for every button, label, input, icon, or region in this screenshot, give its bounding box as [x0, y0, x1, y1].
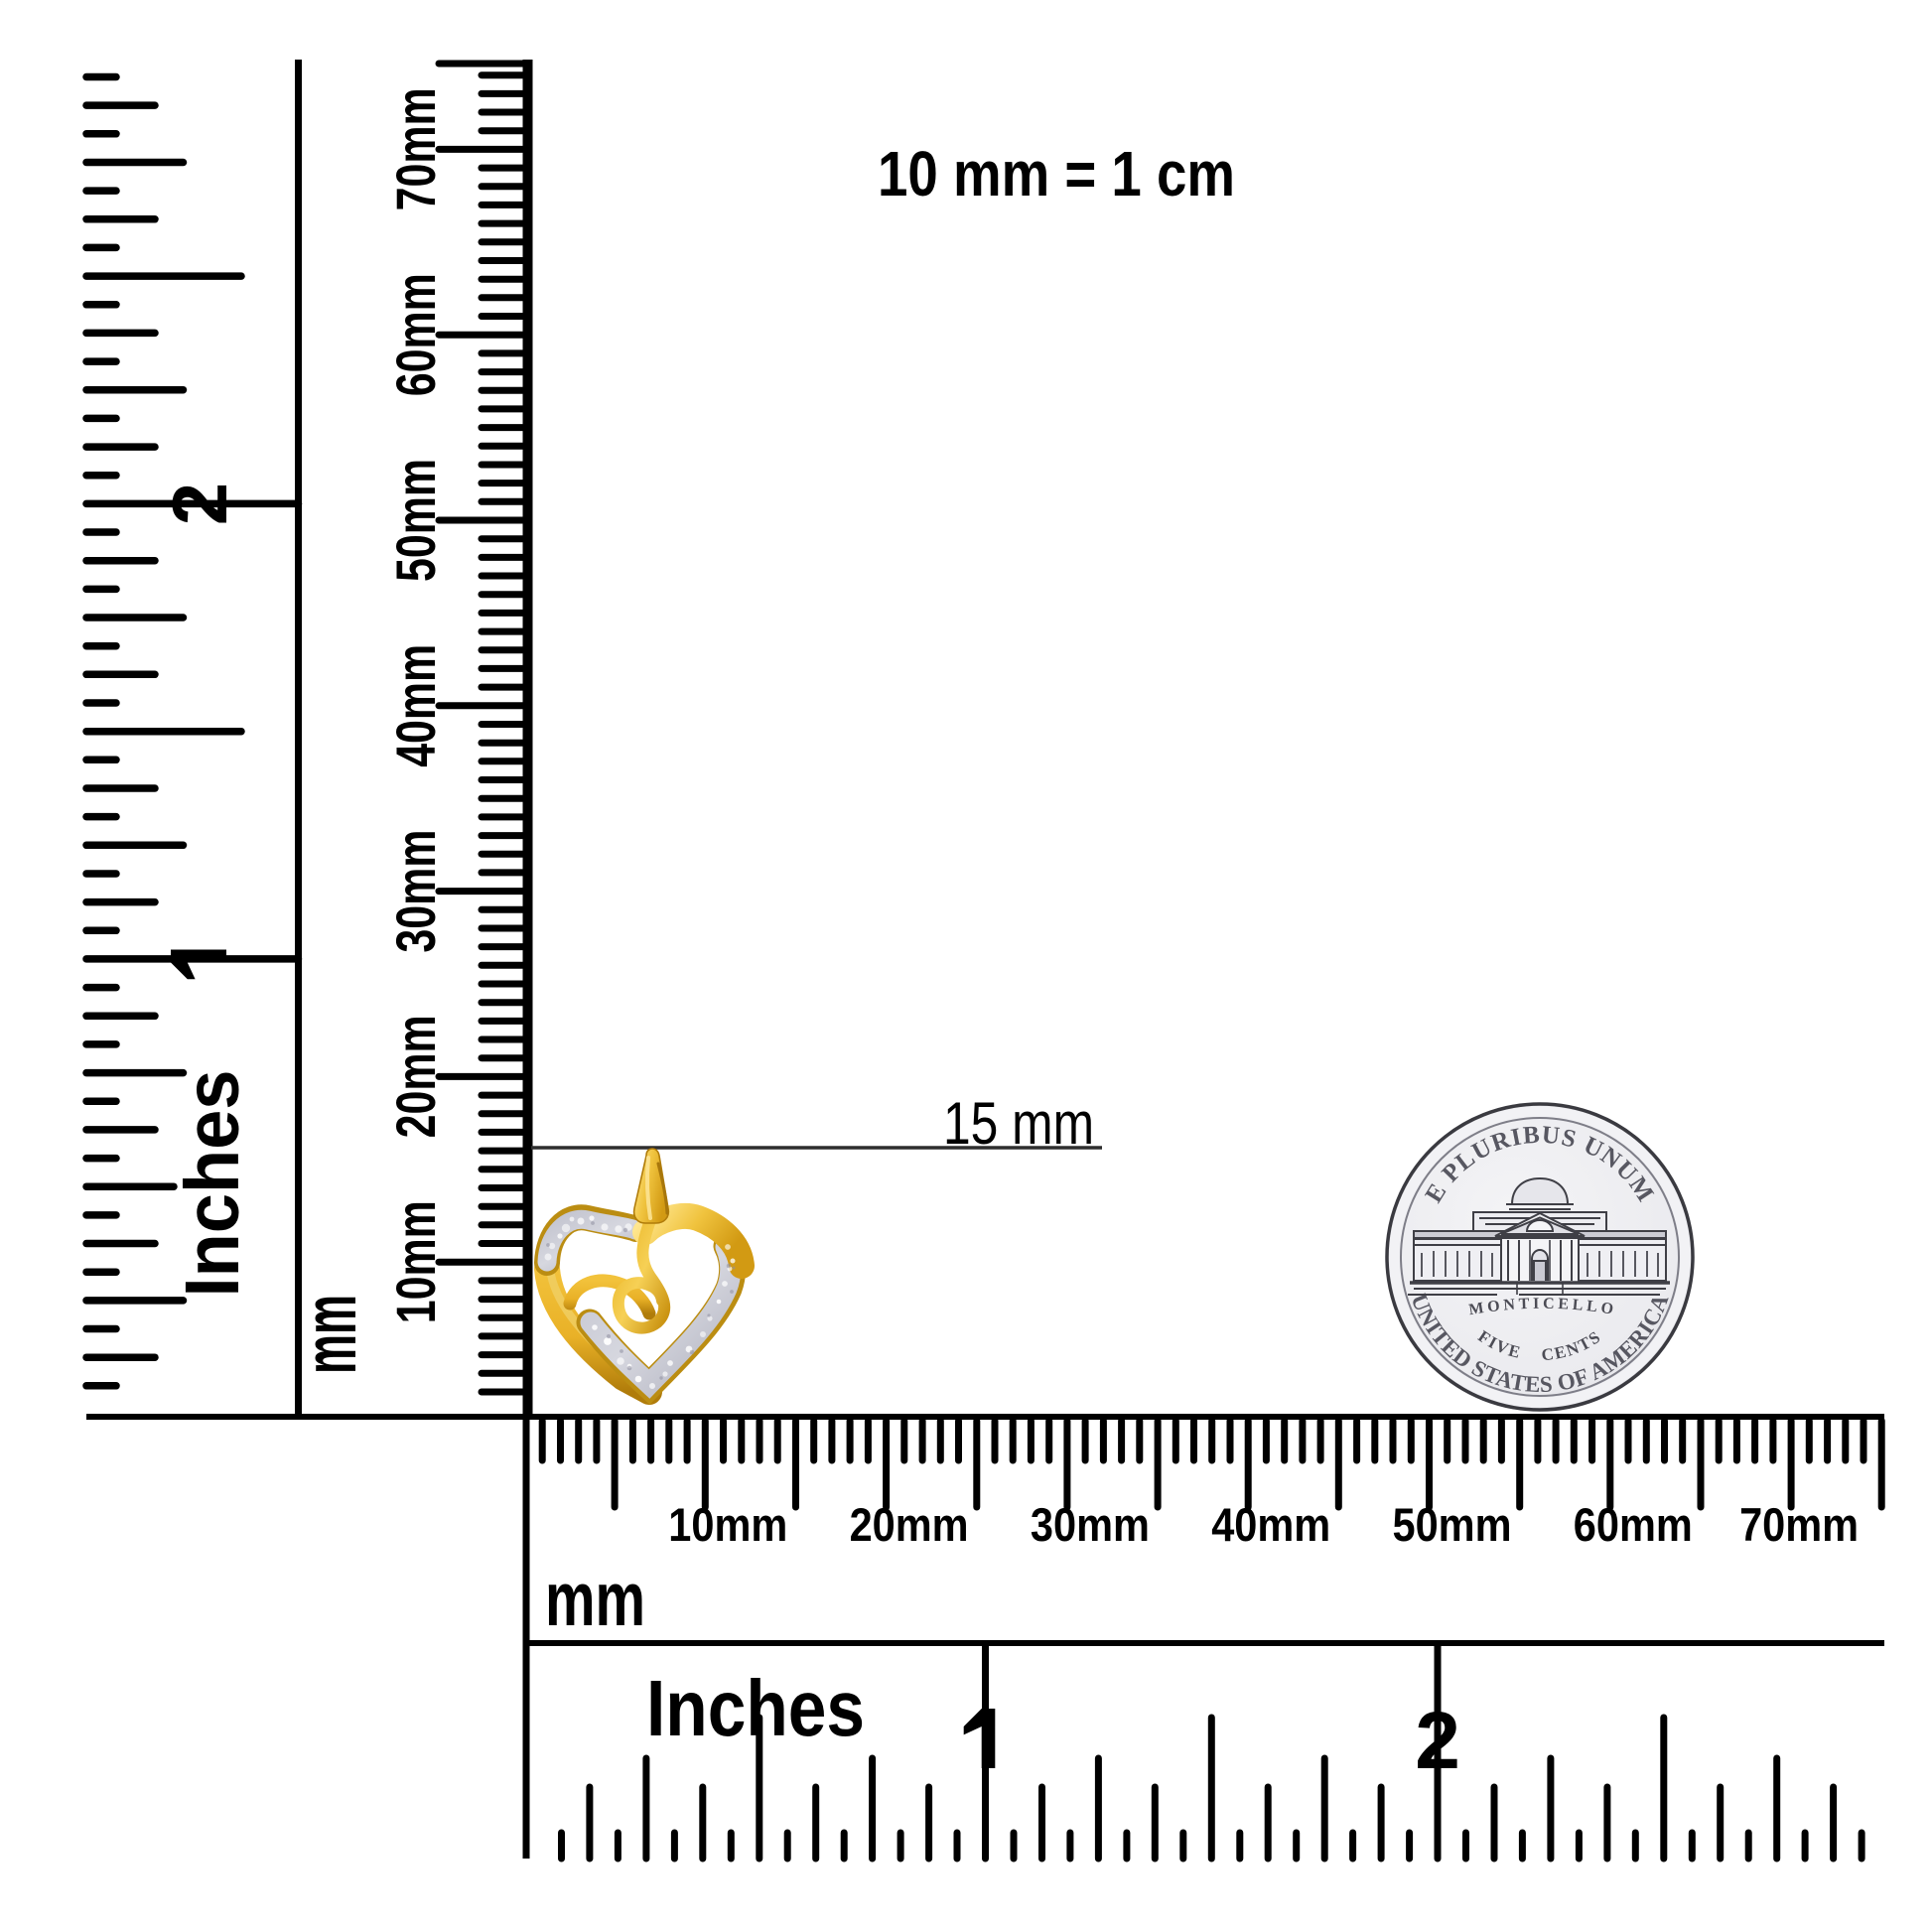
svg-text:mm: mm: [545, 1557, 645, 1642]
svg-text:Inches: Inches: [170, 1070, 255, 1298]
svg-text:30mm: 30mm: [1031, 1498, 1150, 1551]
svg-text:20mm: 20mm: [850, 1498, 969, 1551]
svg-text:Inches: Inches: [646, 1664, 865, 1752]
svg-text:70mm: 70mm: [1739, 1498, 1859, 1551]
svg-text:40mm: 40mm: [384, 644, 447, 767]
svg-text:30mm: 30mm: [384, 830, 447, 953]
svg-text:70mm: 70mm: [384, 87, 447, 210]
svg-text:60mm: 60mm: [1574, 1498, 1693, 1551]
svg-text:10mm: 10mm: [668, 1498, 787, 1551]
svg-text:40mm: 40mm: [1211, 1498, 1330, 1551]
svg-text:10mm: 10mm: [384, 1200, 447, 1323]
svg-text:20mm: 20mm: [384, 1015, 447, 1138]
svg-text:60mm: 60mm: [384, 273, 447, 396]
svg-text:50mm: 50mm: [1393, 1498, 1512, 1551]
svg-text:2: 2: [1415, 1696, 1460, 1786]
svg-text:10 mm = 1 cm: 10 mm = 1 cm: [878, 138, 1235, 209]
svg-text:50mm: 50mm: [384, 459, 447, 582]
svg-text:mm: mm: [288, 1295, 371, 1374]
svg-text:2: 2: [156, 483, 243, 525]
